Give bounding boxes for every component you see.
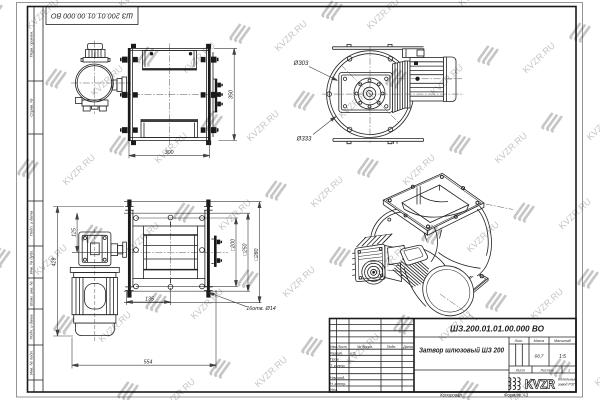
- svg-text:Подп. и дата: Подп. и дата: [29, 210, 34, 236]
- svg-text:Масса: Масса: [534, 339, 545, 343]
- svg-text:1: 1: [568, 368, 570, 372]
- svg-text:□280: □280: [254, 248, 260, 260]
- svg-text:Н. контр.: Н. контр.: [330, 382, 346, 386]
- svg-text:Инв. № подл.: Инв. № подл.: [29, 350, 34, 375]
- svg-text:Нач.отд.: Нач.отд.: [330, 376, 345, 380]
- svg-text:Масштаб: Масштаб: [554, 339, 572, 343]
- svg-text:Пров.: Пров.: [330, 358, 339, 362]
- svg-text:Т. контр.: Т. контр.: [330, 364, 346, 368]
- svg-text:Лист: Лист: [337, 345, 347, 349]
- svg-text:Изм: Изм: [330, 345, 337, 349]
- svg-text:Перв. примен.: Перв. примен.: [29, 31, 34, 58]
- svg-text:Подп. и дата: Подп. и дата: [29, 314, 34, 340]
- svg-text:Разраб.: Разраб.: [330, 351, 343, 355]
- svg-text:Лист: Лист: [515, 368, 525, 372]
- svg-text:Утв.: Утв.: [330, 388, 338, 392]
- svg-text:Ø303: Ø303: [293, 61, 309, 67]
- svg-text:Справ. №: Справ. №: [29, 98, 34, 117]
- svg-text:Лит.: Лит.: [514, 339, 523, 343]
- svg-text:Дата: Дата: [402, 345, 412, 349]
- svg-text:завод РЗТ: завод РЗТ: [557, 383, 576, 387]
- svg-text:□200: □200: [231, 239, 237, 251]
- svg-text:Взам. инв. №: Взам. инв. №: [29, 280, 34, 305]
- svg-text:16отв. Ø14: 16отв. Ø14: [246, 306, 275, 312]
- svg-text:Ø333: Ø333: [296, 137, 312, 143]
- svg-text:Затвор шлюзовый ШЗ 200: Затвор шлюзовый ШЗ 200: [419, 346, 504, 355]
- svg-text:Подп.: Подп.: [387, 345, 397, 349]
- svg-text:125: 125: [71, 228, 77, 237]
- svg-text:ШЗ.200.01.01.00.000 ВО: ШЗ.200.01.01.00.000 ВО: [450, 324, 544, 334]
- svg-text:□250: □250: [243, 243, 249, 255]
- svg-text:554: 554: [144, 359, 153, 365]
- svg-text:350: 350: [228, 90, 234, 99]
- svg-text:68,7: 68,7: [535, 354, 544, 359]
- svg-text:ШЗ 200.01.01.00.000 ВО: ШЗ 200.01.01.00.000 ВО: [51, 12, 133, 21]
